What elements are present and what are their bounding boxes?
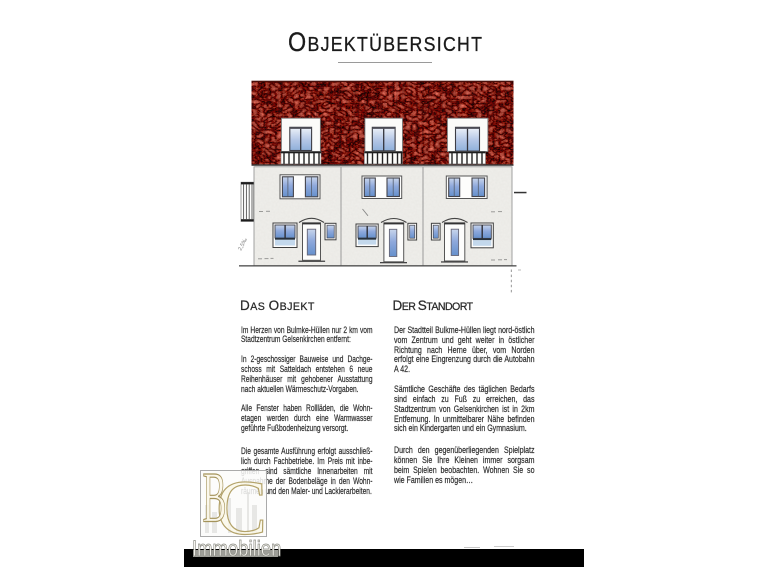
svg-text:B: B <box>203 458 227 538</box>
